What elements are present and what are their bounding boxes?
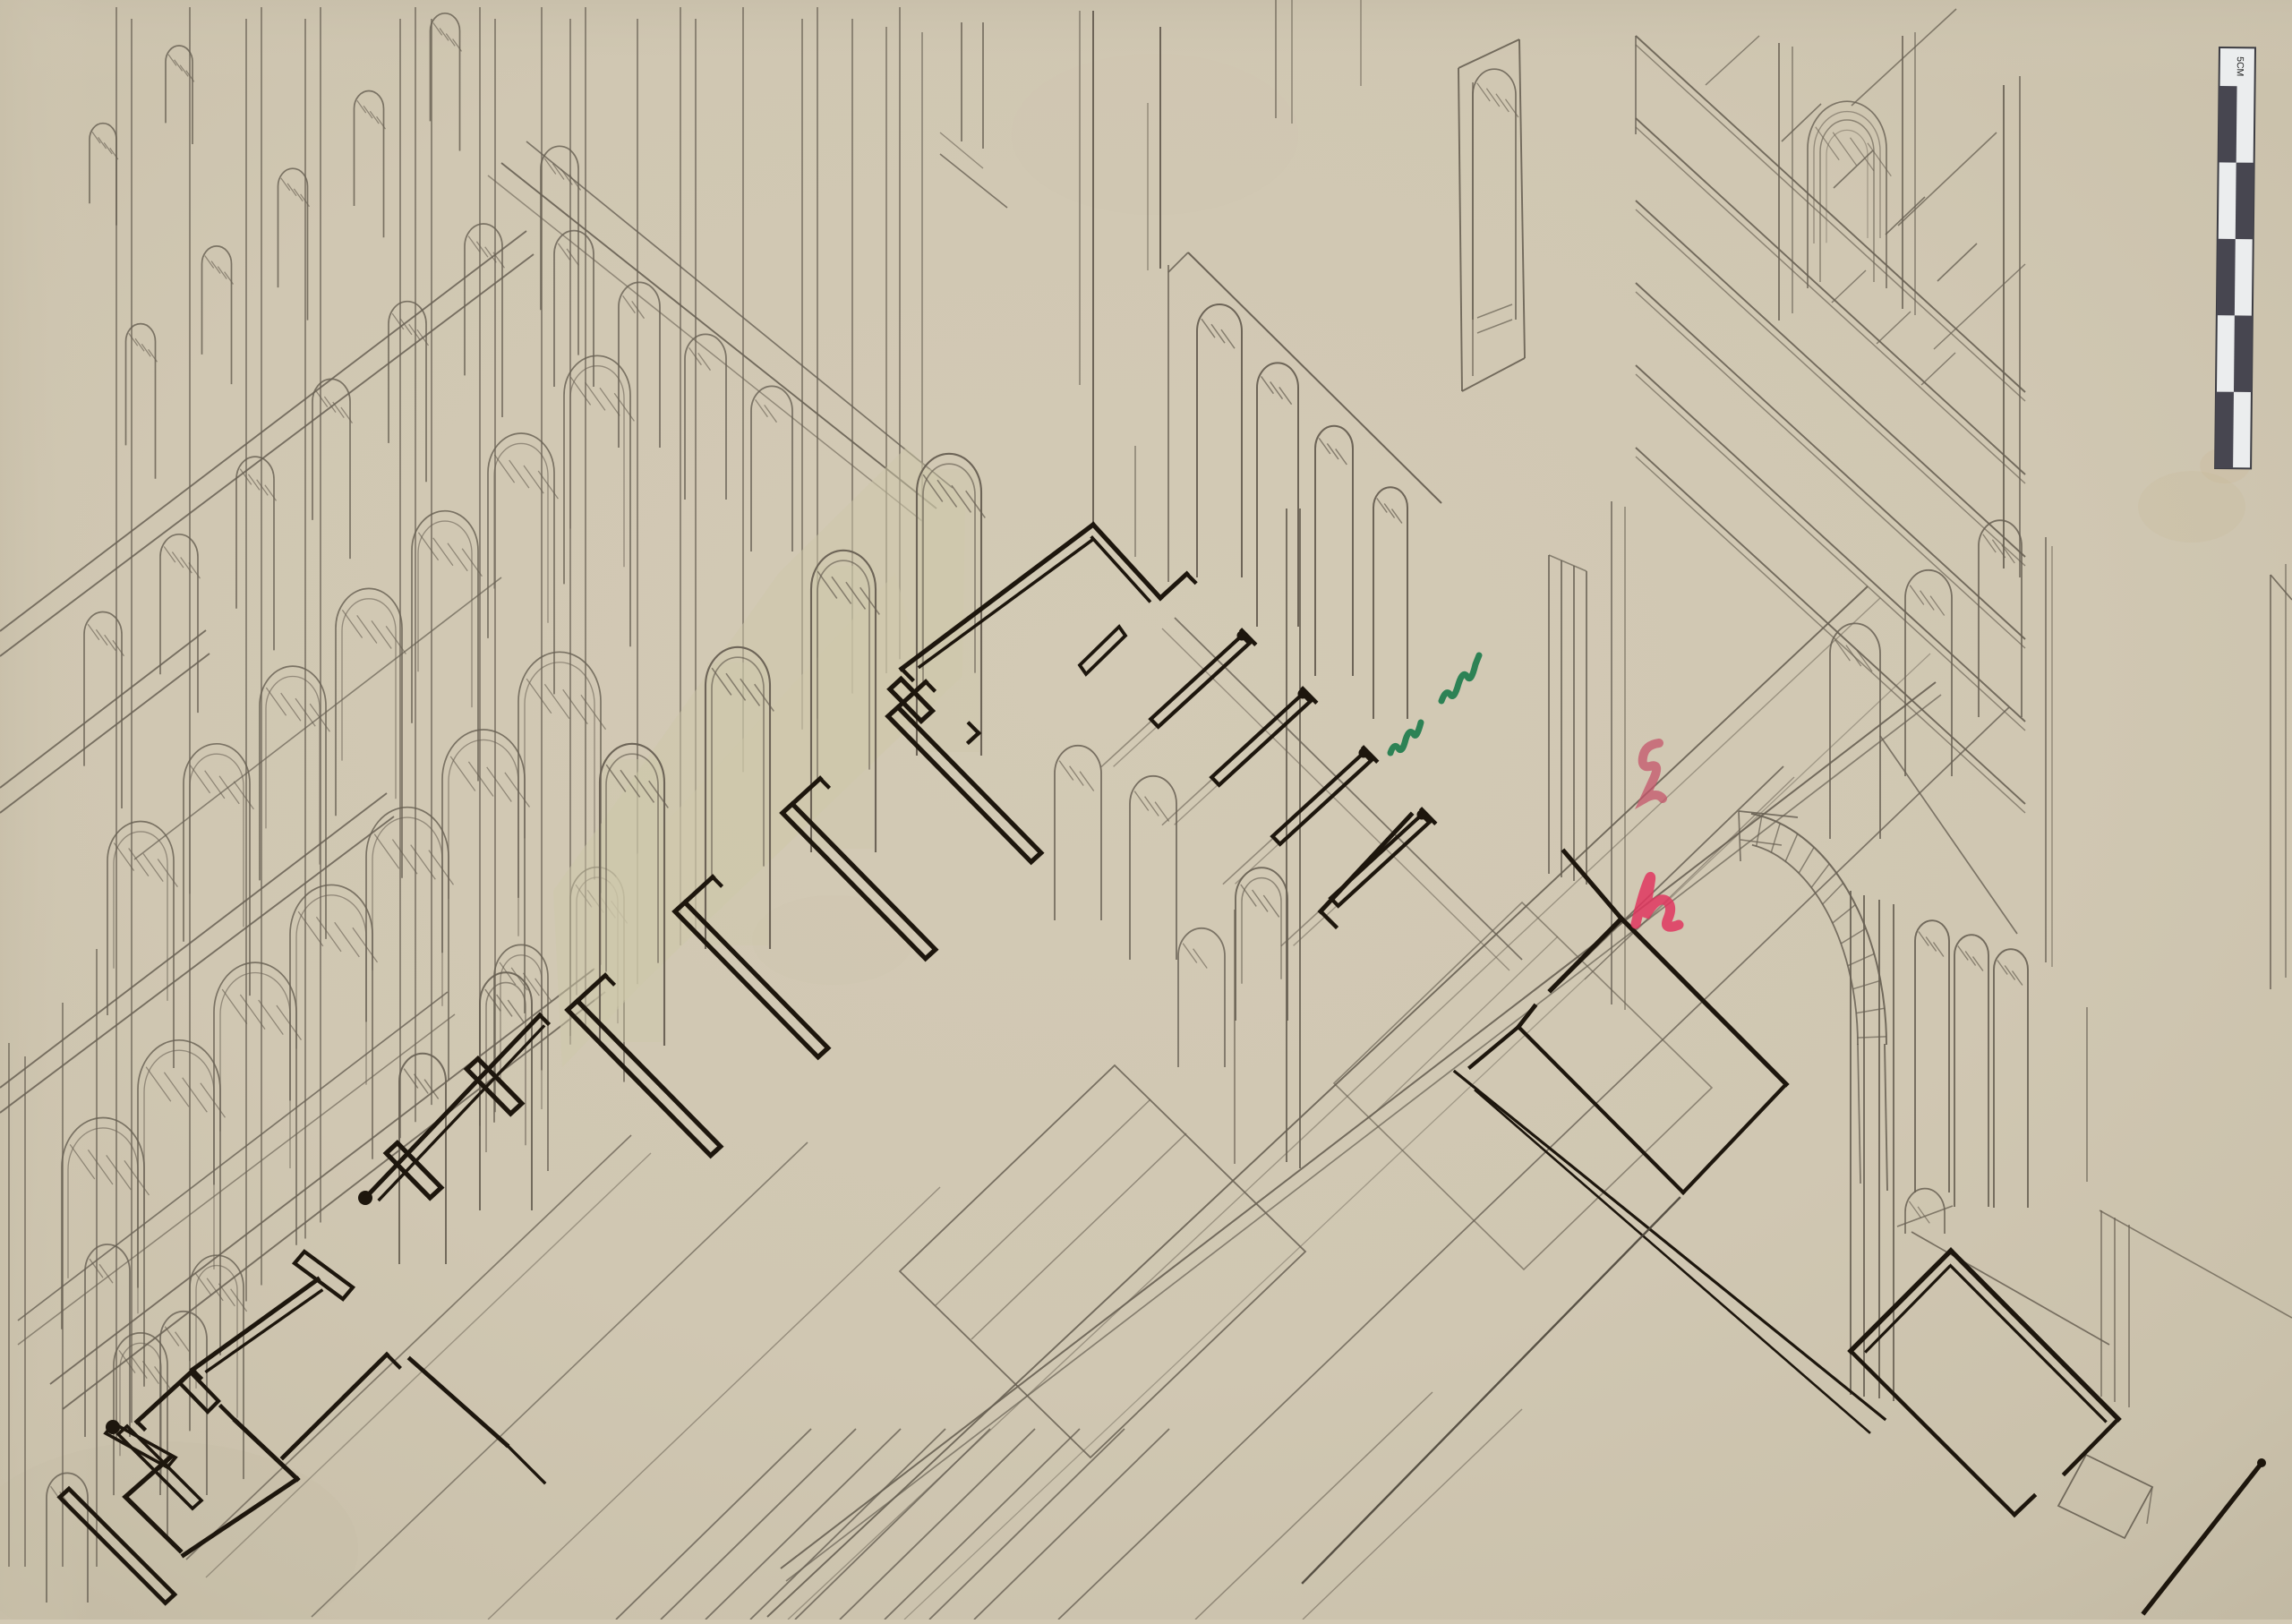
svg-text:5CM: 5CM: [2235, 56, 2245, 76]
